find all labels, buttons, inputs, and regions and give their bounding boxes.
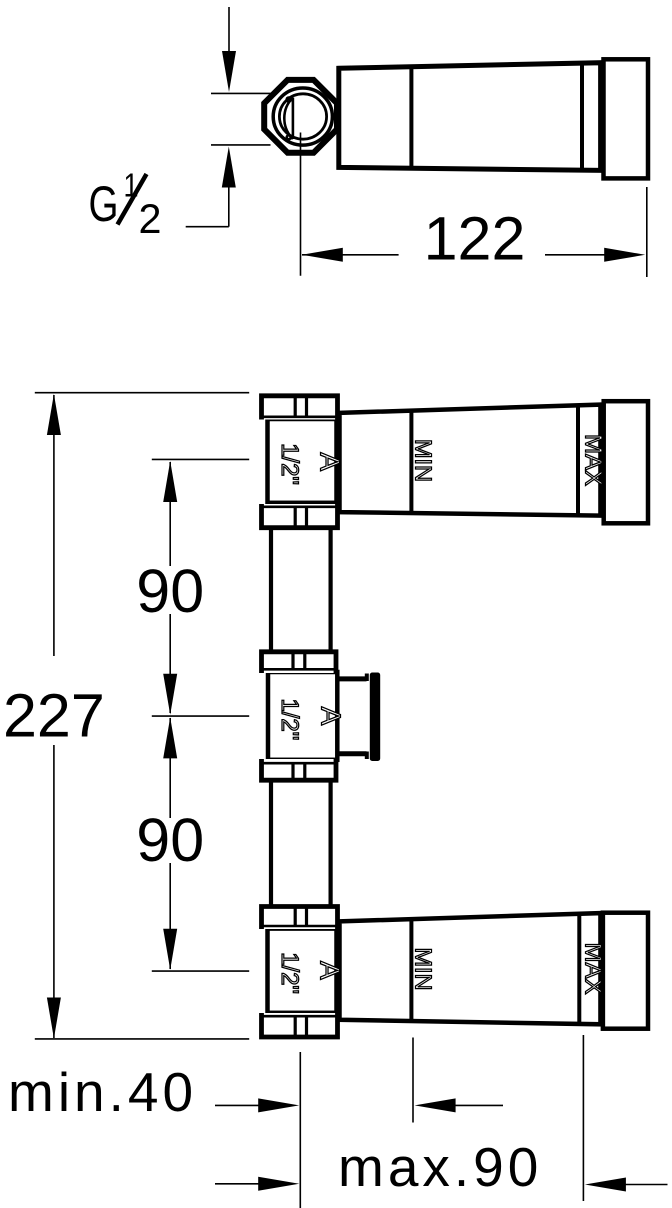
svg-text:1/2": 1/2" (276, 443, 303, 485)
svg-text:90: 90 (136, 806, 204, 874)
svg-text:2: 2 (139, 195, 162, 242)
svg-text:A: A (315, 452, 346, 471)
svg-text:90: 90 (136, 557, 204, 625)
svg-text:A: A (315, 961, 346, 980)
svg-text:1/2": 1/2" (276, 698, 303, 740)
svg-text:MIN: MIN (410, 439, 436, 482)
svg-text:MIN: MIN (410, 947, 436, 990)
svg-text:min.40: min.40 (8, 1061, 197, 1123)
svg-text:G: G (89, 176, 119, 232)
svg-text:227: 227 (3, 682, 105, 750)
svg-text:A: A (316, 707, 347, 726)
svg-text:max.90: max.90 (338, 1136, 542, 1198)
svg-text:1/2": 1/2" (276, 952, 303, 994)
svg-text:122: 122 (424, 205, 526, 273)
